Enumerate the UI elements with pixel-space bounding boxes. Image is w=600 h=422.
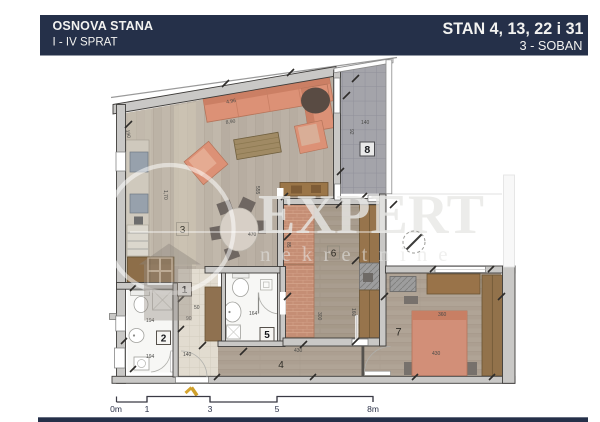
svg-text:8: 8 (364, 144, 370, 156)
svg-text:I - IV SPRAT: I - IV SPRAT (53, 37, 118, 49)
svg-text:8m: 8m (367, 404, 379, 414)
svg-text:160: 160 (350, 308, 356, 317)
svg-text:430: 430 (294, 348, 303, 354)
svg-text:3: 3 (208, 404, 213, 414)
svg-text:STAN 4, 13, 22 i 31: STAN 4, 13, 22 i 31 (443, 19, 584, 38)
svg-text:3 - SOBAN: 3 - SOBAN (520, 39, 583, 53)
svg-text:194: 194 (146, 354, 155, 360)
svg-text:nekretnine: nekretnine (260, 242, 459, 266)
svg-text:7: 7 (395, 327, 401, 339)
svg-text:3: 3 (180, 225, 186, 236)
svg-text:0m: 0m (110, 404, 122, 414)
svg-text:1: 1 (145, 404, 150, 414)
svg-text:140: 140 (361, 120, 370, 126)
svg-text:470: 470 (248, 232, 257, 238)
svg-text:1,70: 1,70 (162, 190, 168, 200)
svg-text:50: 50 (194, 305, 200, 311)
svg-text:300: 300 (316, 312, 322, 321)
svg-text:360: 360 (438, 312, 447, 318)
svg-text:5: 5 (264, 330, 270, 341)
svg-text:OSNOVA STANA: OSNOVA STANA (53, 19, 154, 33)
svg-text:430: 430 (432, 351, 441, 357)
svg-text:140: 140 (183, 352, 192, 358)
svg-text:2: 2 (161, 334, 167, 345)
svg-text:164: 164 (249, 311, 258, 317)
svg-text:5: 5 (275, 404, 280, 414)
svg-text:EXPERT: EXPERT (258, 184, 484, 246)
svg-text:4: 4 (278, 360, 284, 371)
svg-text:92: 92 (348, 129, 354, 135)
